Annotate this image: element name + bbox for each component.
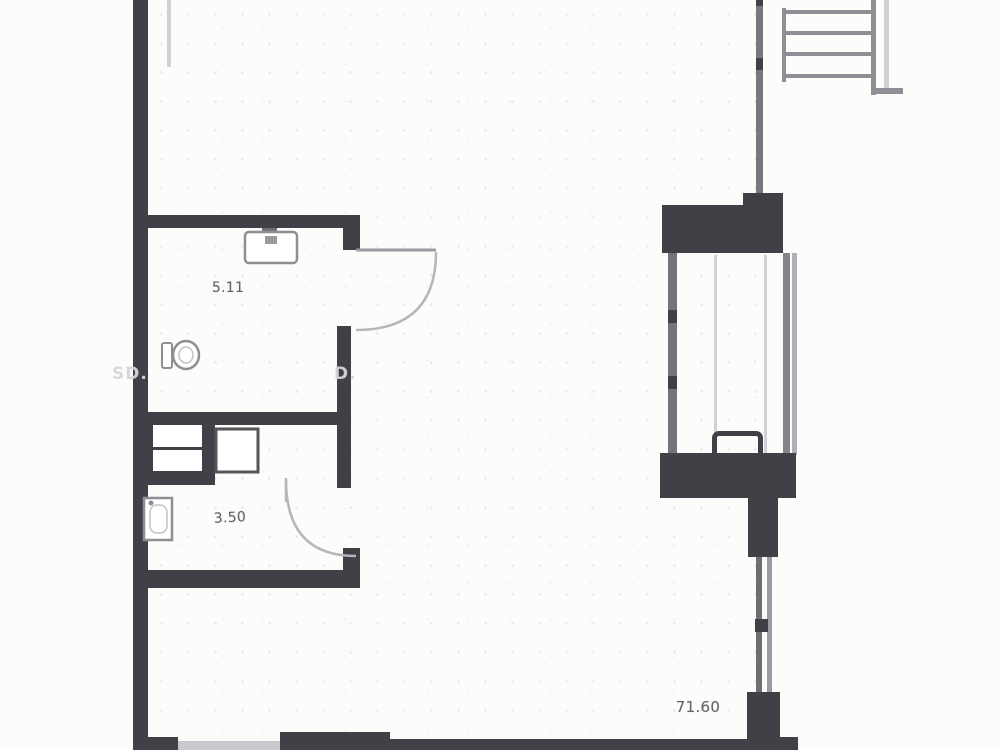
shower-box-icon xyxy=(216,429,258,472)
watermark-left: SD. xyxy=(112,364,148,384)
living-area-label: 71.60 xyxy=(658,698,738,716)
watermark-middle: D. xyxy=(334,364,357,384)
sink-icon xyxy=(245,228,297,263)
toilet-icon xyxy=(162,341,199,369)
water-heater-icon xyxy=(144,498,172,540)
door-arc-wc xyxy=(286,480,356,556)
wc-area-label: 3.50 xyxy=(198,508,263,527)
bathroom-area-label: 5.11 xyxy=(196,280,260,296)
floor-plan: 5.11 3.50 71.60 SD. D. xyxy=(0,0,1000,750)
door-arc-bathroom xyxy=(356,252,436,330)
